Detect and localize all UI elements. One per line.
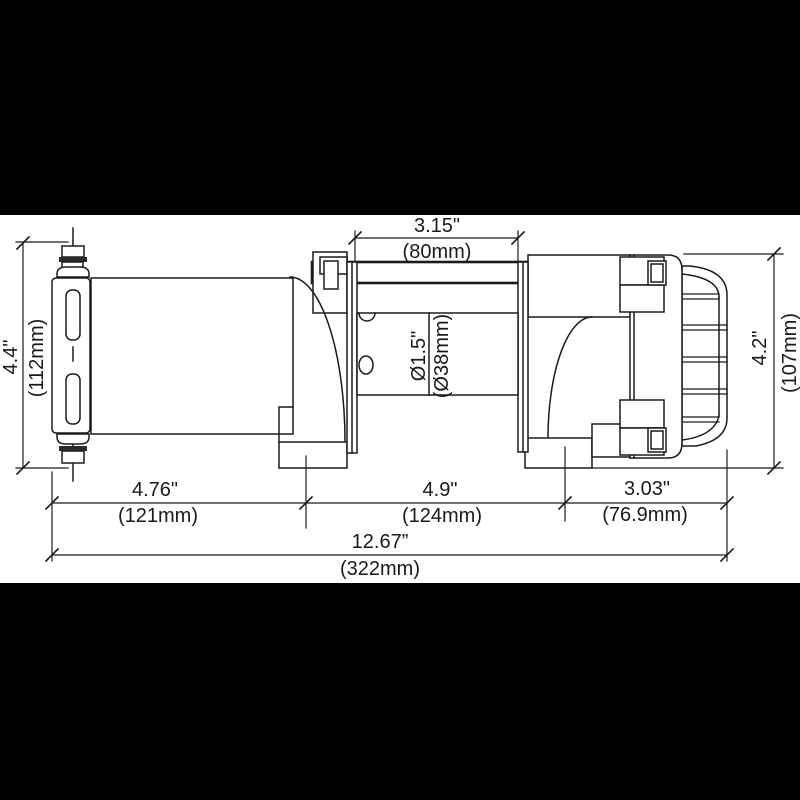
dim-overall-length-in: 12.67” [352,532,409,552]
dim-overall-length-mm: (322mm) [340,559,420,579]
clutch-knob [682,266,727,446]
dim-right-height-mm: (107mm) [780,313,800,393]
mounting-bolt-top [57,228,89,280]
dim-left-height-in: 4.4" [1,340,21,375]
dim-gear-section-mm: (76.9mm) [602,505,688,525]
mounting-bolt-bottom [57,433,89,481]
dim-gear-section-in: 3.03" [624,479,670,499]
gear-housing [620,255,682,458]
dim-motor-section-mm: (121mm) [118,506,198,526]
dim-drum-diameter-in: Ø1.5" [409,331,429,381]
motor-housing [91,278,293,434]
dim-drum-section-in: 4.9" [423,480,458,500]
dim-motor-section-in: 4.76" [132,480,178,500]
letterboxed-product-image: 3.15" (80mm) 4.4" (112mm) 4.2" (107mm) Ø… [0,0,800,800]
dim-drum-width-in: 3.15" [414,216,460,236]
dim-drum-width-mm: (80mm) [403,242,472,262]
winch-line-drawing [0,215,800,583]
dim-drum-section-mm: (124mm) [402,506,482,526]
right-support-leg [525,255,630,468]
dim-drum-diameter-mm: (Ø38mm) [432,314,452,398]
dim-right-height-in: 4.2" [750,331,770,366]
drawing-sheet [0,215,800,583]
dim-left-height-mm: (112mm) [27,319,47,398]
mounting-bracket [52,278,90,433]
